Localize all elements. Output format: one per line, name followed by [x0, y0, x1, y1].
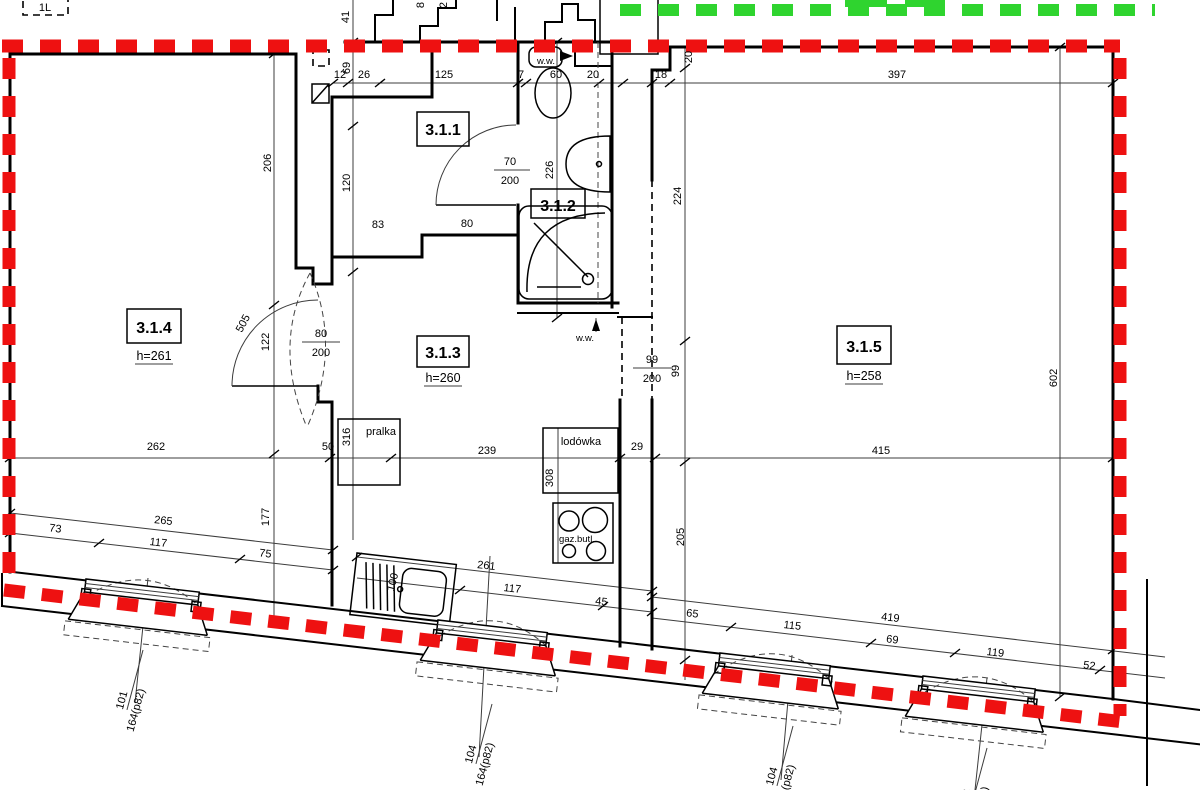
dim: 2: [438, 2, 450, 8]
vent-top-label: w.w.: [536, 56, 555, 67]
door-height: 200: [643, 373, 661, 385]
dim: 18: [655, 69, 667, 81]
dim: 99: [670, 365, 682, 377]
svg-text:164(p82): 164(p82): [969, 785, 992, 790]
dim: 117: [149, 536, 168, 550]
dim: 73: [49, 522, 63, 535]
dim: 117: [503, 582, 522, 596]
door-width: 99: [646, 354, 658, 366]
dim: 20: [683, 51, 695, 63]
dim: 26: [358, 69, 370, 81]
dim: 80: [461, 218, 473, 230]
dim: 265: [154, 514, 174, 528]
dim: 120: [341, 174, 353, 192]
dim: 69: [886, 633, 900, 646]
dim: 52: [1083, 659, 1097, 672]
dim: 224: [672, 187, 684, 205]
room-3-1-1-label: 3.1.1: [425, 122, 461, 139]
window-labels: 101 164(p82) 104 164(p82) 104 164(p82) 1…: [109, 647, 1001, 790]
dim: 122: [260, 333, 272, 351]
dim: 65: [686, 607, 700, 620]
gas-stove: [553, 503, 613, 563]
walls: [2, 0, 1200, 785]
dim: 415: [872, 445, 890, 457]
dim: 69: [341, 62, 353, 74]
doors: [232, 125, 516, 425]
dim: 29: [631, 441, 643, 453]
dim: 20: [587, 69, 599, 81]
dimension-lines: [5, 0, 1165, 790]
secondary-boundary-green: [620, 0, 1155, 10]
dim: 83: [372, 219, 384, 231]
dim: 45: [595, 595, 609, 608]
room-3-1-4-label: 3.1.4: [136, 320, 172, 337]
bathroom-sink: [566, 136, 610, 192]
dim: 239: [478, 445, 496, 457]
dim: 8: [415, 2, 427, 8]
room-labels: 3.1.1 3.1.2 3.1.3 h=260 3.1.4 h=261 3.1.…: [127, 112, 891, 386]
dim: 419: [881, 611, 901, 625]
dim: 7: [518, 69, 524, 81]
dim: 115: [783, 619, 802, 633]
room-3-1-3-label: 3.1.3: [425, 345, 461, 362]
dimension-labels: 41 12 26 69 125 7 60 20 18 20 397 8 2 12…: [49, 2, 1097, 673]
stove-label: gaz.butl.: [559, 534, 595, 545]
dim: 316: [341, 428, 353, 446]
room-3-1-3-height: h=260: [425, 371, 460, 385]
dim: 226: [544, 161, 556, 179]
dim: 308: [544, 469, 556, 487]
dim: 205: [675, 528, 687, 546]
door-height: 200: [312, 347, 330, 359]
dim: 50: [322, 441, 334, 453]
fixture-labels: pralka lodówka gaz.butl. w.w. w.w.: [366, 56, 602, 545]
windows: [63, 572, 1051, 749]
floor-plan: 1L 3.1.1 3.1.2 3.1.3 h=260 3.1.4 h=261 3…: [0, 0, 1200, 790]
kitchen-sink: [350, 553, 456, 626]
door-height: 200: [501, 175, 519, 187]
window-2-label: 104 164(p82): [458, 701, 506, 787]
dim: 75: [259, 547, 273, 560]
room-3-1-5-label: 3.1.5: [846, 339, 882, 356]
dim: 602: [1048, 369, 1060, 387]
room-3-1-4-height: h=261: [136, 349, 171, 363]
dim: 41: [340, 11, 352, 23]
dim: 60: [550, 69, 562, 81]
dim: 262: [147, 441, 165, 453]
dim: 206: [262, 154, 274, 172]
room-3-1-2-label: 3.1.2: [540, 198, 576, 215]
fridge-label: lodówka: [561, 436, 602, 448]
dim: 177: [260, 508, 272, 526]
window-1-label: 101 164(p82): [109, 647, 157, 733]
door-width: 70: [504, 156, 516, 168]
room-3-1-5-height: h=258: [846, 369, 881, 383]
door-width: 80: [315, 328, 327, 340]
dim: 119: [986, 646, 1005, 660]
dim: 125: [435, 69, 453, 81]
dim: 397: [888, 69, 906, 81]
vent-arrow-right-icon: [560, 51, 573, 61]
marker-label: 1L: [39, 2, 51, 14]
washer-label: pralka: [366, 426, 397, 438]
dim: 505: [234, 313, 253, 335]
vent-arrow-up-icon: [592, 319, 600, 331]
marker-box: 1L: [23, 0, 68, 15]
dim: 261: [477, 559, 497, 573]
vent-mid-label: w.w.: [575, 333, 594, 344]
